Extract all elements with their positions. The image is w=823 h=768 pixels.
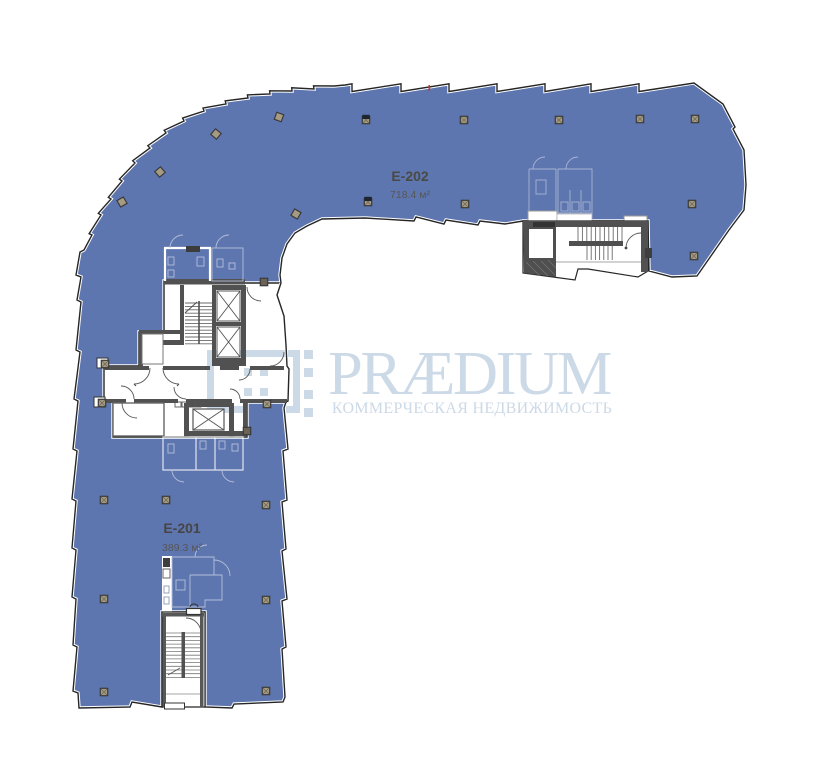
svg-text:PRÆDIUM: PRÆDIUM <box>328 338 611 408</box>
svg-text:КОММЕРЧЕСКАЯ НЕДВИЖИМОСТЬ: КОММЕРЧЕСКАЯ НЕДВИЖИМОСТЬ <box>332 400 612 417</box>
svg-text:E-202: E-202 <box>391 168 429 184</box>
svg-text:389.3 м²: 389.3 м² <box>162 542 202 554</box>
svg-text:E-201: E-201 <box>163 520 201 536</box>
svg-text:718.4 м²: 718.4 м² <box>390 189 430 201</box>
